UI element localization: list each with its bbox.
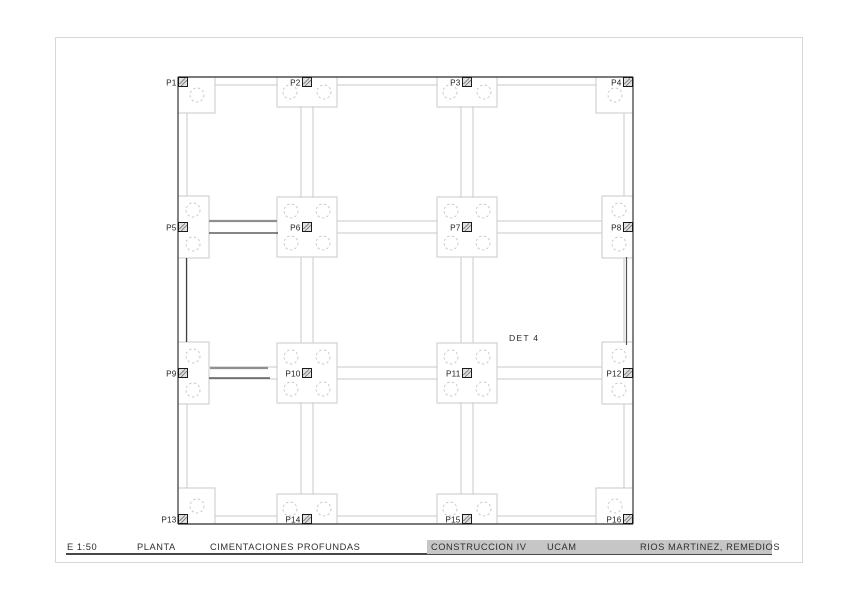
author-label: RIOS MARTINEZ, REMEDIOS — [640, 541, 780, 554]
column-marker — [463, 223, 472, 232]
cap-label: P11 — [446, 370, 461, 379]
cap-label: P8 — [611, 224, 622, 233]
cap-label: P2 — [290, 79, 301, 88]
cap-label: P16 — [606, 516, 621, 525]
tie-beam — [183, 221, 629, 233]
cap-label: P4 — [611, 79, 622, 88]
cap-label: P10 — [285, 370, 300, 379]
drawing-sheet: P1P2P3P4P5P6P7P8P9P10P11P12P13P14P15P16D… — [0, 0, 848, 600]
cap-label: P12 — [606, 370, 621, 379]
column-marker — [624, 78, 633, 87]
column-marker — [303, 369, 312, 378]
institution-label: UCAM — [547, 541, 577, 554]
cap-label: P1 — [166, 79, 177, 88]
cap-label: P6 — [290, 224, 301, 233]
cap-label: P14 — [285, 516, 300, 525]
perimeter-beam — [178, 516, 633, 524]
cap-label: P5 — [166, 224, 177, 233]
column-marker — [179, 223, 188, 232]
column-marker — [179, 78, 188, 87]
tie-beam — [461, 81, 473, 520]
column-marker — [624, 369, 633, 378]
column-marker — [179, 369, 188, 378]
cap-label: P7 — [450, 224, 461, 233]
tie-beam — [301, 81, 313, 520]
column-marker — [463, 515, 472, 524]
column-marker — [303, 78, 312, 87]
column-marker — [624, 223, 633, 232]
titlebar-box: CONSTRUCCION IV UCAM RIOS MARTINEZ, REME… — [427, 540, 772, 554]
foundation-plan-svg: P1P2P3P4P5P6P7P8P9P10P11P12P13P14P15P16D… — [0, 0, 848, 600]
cap-label: P15 — [445, 516, 460, 525]
detail-annotation: DET 4 — [509, 333, 539, 343]
cap-label: P3 — [450, 79, 461, 88]
perimeter-beam — [178, 77, 187, 524]
cap-label: P13 — [161, 516, 176, 525]
course-label: CONSTRUCCION IV — [431, 541, 527, 554]
cap-label: P9 — [166, 370, 177, 379]
column-marker — [463, 78, 472, 87]
column-marker — [624, 515, 633, 524]
column-marker — [463, 369, 472, 378]
perimeter-beam — [624, 77, 633, 524]
column-marker — [179, 515, 188, 524]
column-marker — [303, 223, 312, 232]
perimeter-beam — [178, 77, 633, 85]
column-marker — [303, 515, 312, 524]
